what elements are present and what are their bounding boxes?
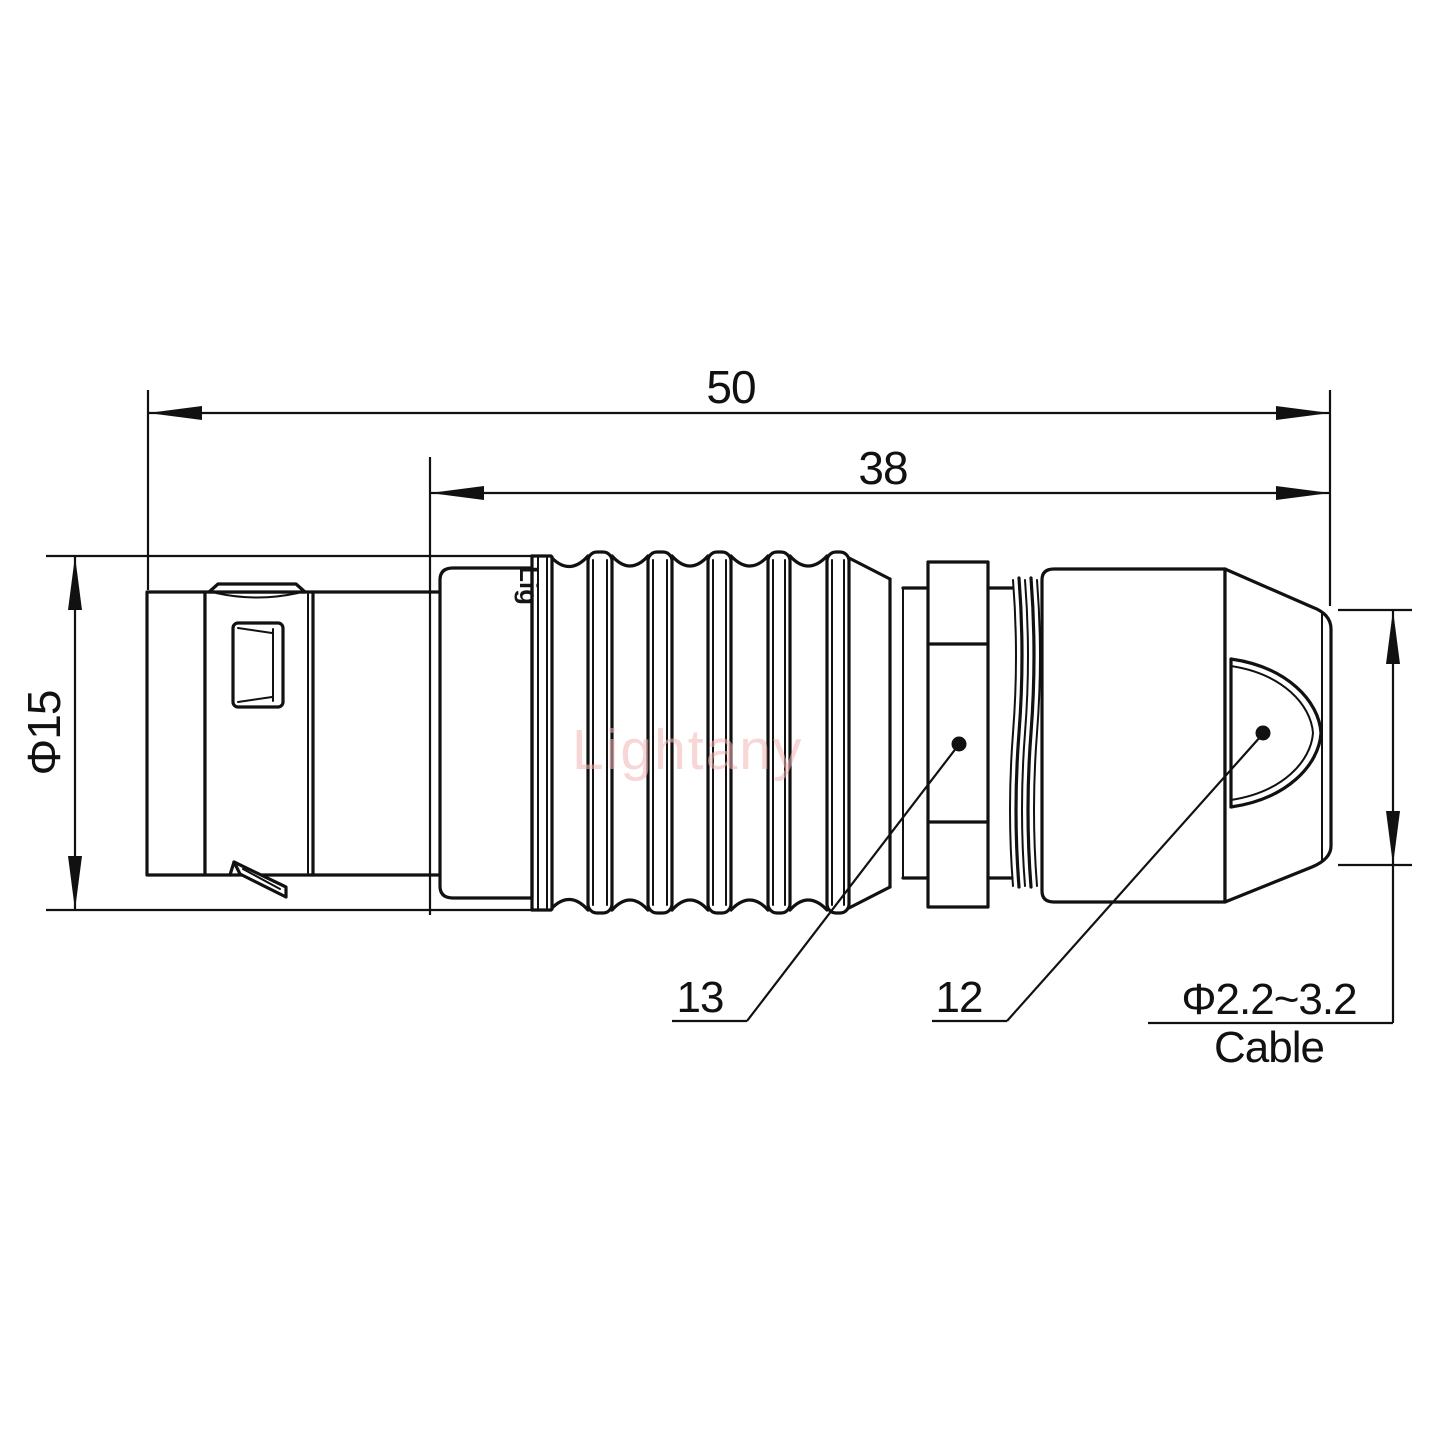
valley-bottom-5 <box>790 900 827 910</box>
valley-top-3 <box>672 556 708 566</box>
back-nut-outline <box>1042 569 1225 902</box>
label12-text: 12 <box>936 973 983 1022</box>
coupling-collar <box>928 562 988 907</box>
front-shell-ring <box>147 592 205 875</box>
thread-section <box>1010 578 1040 887</box>
dim50-arrow-right <box>1276 406 1330 420</box>
boot-fin-5 <box>827 552 849 913</box>
dimcable-arrow-bottom <box>1386 811 1400 865</box>
label13-dot <box>952 737 967 752</box>
front-shell-sleeve <box>313 592 440 875</box>
ring-outline <box>147 592 205 875</box>
collar-outline <box>928 562 988 907</box>
dimcable-label: Cable <box>1214 1023 1324 1072</box>
valley-bottom-3 <box>672 900 708 910</box>
dim50-arrow-left <box>148 406 202 420</box>
valley-top-2 <box>612 556 648 566</box>
front-neck <box>903 588 928 878</box>
dimcable-value: Φ2.2~3.2 <box>1181 975 1356 1024</box>
valley-bottom-1 <box>552 899 588 910</box>
label12-dot <box>1256 726 1271 741</box>
valley-top-4 <box>731 556 768 566</box>
cylinder-outline <box>440 568 532 898</box>
valley-top-5 <box>790 556 827 566</box>
valley-bottom-4 <box>731 900 768 910</box>
cap-outline <box>205 592 313 875</box>
dim15-arrow-bottom <box>68 856 82 910</box>
dim38-arrow-right <box>1276 486 1330 500</box>
boot-taper-top <box>849 558 890 579</box>
dim38-arrow-left <box>430 486 484 500</box>
front-shell-latch-cap <box>205 584 313 897</box>
cap-top-bump <box>209 584 305 592</box>
valley-top-1 <box>552 556 588 567</box>
dim15-arrow-top <box>68 556 82 610</box>
back-nut-cone <box>1225 569 1331 902</box>
back-nut <box>1042 569 1331 902</box>
technical-drawing: Lig <box>0 0 1440 1440</box>
dimcable-arrow-top <box>1386 610 1400 664</box>
boot-front-cylinder: Lig <box>440 566 544 898</box>
boot-taper-bottom <box>849 887 890 908</box>
valley-bottom-2 <box>612 900 648 910</box>
rear-neck <box>988 588 1012 878</box>
dim38-value: 38 <box>858 442 907 494</box>
dim15-value: Φ15 <box>18 691 70 776</box>
engraving-text: Lig <box>514 566 544 605</box>
thread-line-2 <box>1016 578 1022 887</box>
dim50-value: 50 <box>706 361 755 413</box>
watermark-text: Lightany <box>572 718 804 782</box>
thread-line-4 <box>1028 578 1034 887</box>
label13-text: 13 <box>677 973 724 1022</box>
